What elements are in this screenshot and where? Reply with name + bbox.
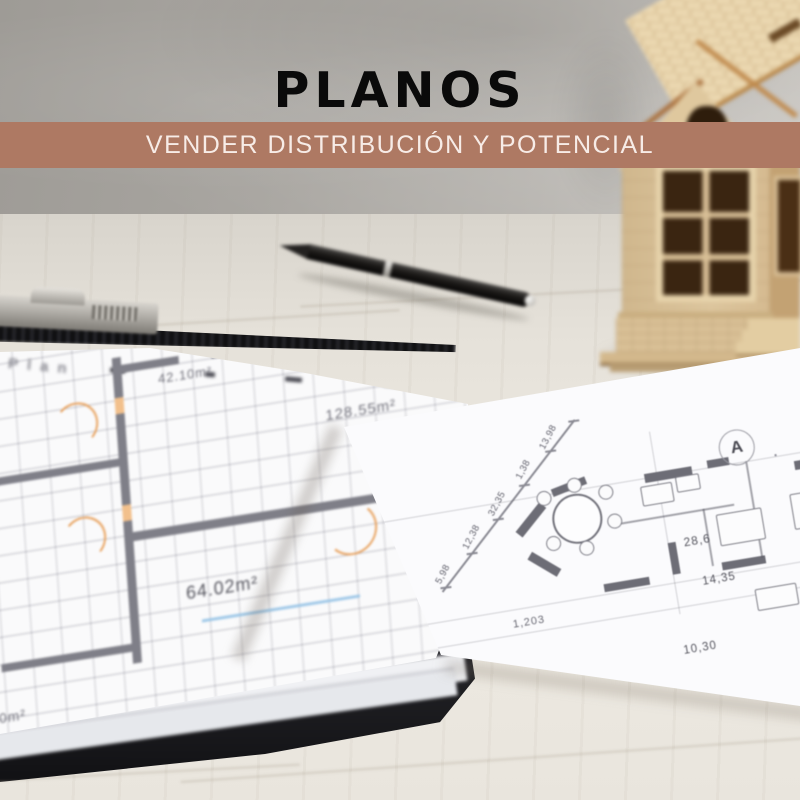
pen-ring — [383, 261, 393, 277]
furniture — [754, 583, 799, 612]
room-area-label: 28,6 — [683, 531, 712, 549]
guide-line — [398, 536, 800, 629]
clip-lever — [31, 287, 86, 306]
guide-line — [422, 561, 800, 651]
furniture — [675, 473, 701, 493]
dimension-value: 5,98 — [433, 563, 452, 586]
dimension-value: 1,38 — [514, 458, 533, 481]
subtitle-text: VENDER DISTRIBUCIÓN Y POTENCIAL — [146, 131, 654, 160]
chair — [606, 512, 623, 529]
ballpoint-pen — [278, 236, 546, 306]
photo-canvas: Plan 42.10m² 128.55m² 64.02m² 0m — [0, 0, 800, 800]
dimension-label: 10,30 — [683, 640, 718, 657]
plan-wall — [668, 542, 681, 575]
dimension-value: 12,38 — [461, 523, 483, 551]
kitchen-cell — [774, 454, 776, 456]
pen-end-button — [524, 294, 537, 307]
dimension-tick — [568, 419, 579, 422]
house-window — [656, 164, 756, 302]
dimension-tick — [440, 586, 451, 589]
dimension-tick — [493, 518, 504, 521]
house-front-wall — [622, 164, 770, 334]
dimension-label: 1,203 — [512, 614, 546, 631]
clip-ribs — [92, 305, 139, 321]
chair — [578, 539, 595, 556]
plan-wall-bay — [527, 552, 561, 577]
subtitle-banner: VENDER DISTRIBUCIÓN Y POTENCIAL — [0, 122, 800, 168]
pen-tip — [278, 238, 311, 259]
dimension-tick — [519, 484, 530, 487]
furniture — [640, 482, 675, 507]
chair — [597, 484, 614, 501]
dimension-value: 13,98 — [537, 423, 559, 451]
door-opening — [115, 397, 125, 414]
dimension-label: 14,35 — [702, 570, 737, 587]
pen-body — [306, 244, 532, 308]
door-opening — [122, 504, 132, 521]
page-title: PLANOS — [0, 62, 800, 119]
dimension-tick — [467, 552, 478, 555]
kitchen-units — [774, 446, 800, 480]
house-side-window — [774, 176, 800, 276]
furniture — [789, 490, 800, 530]
plan-wall-bay — [516, 502, 547, 537]
